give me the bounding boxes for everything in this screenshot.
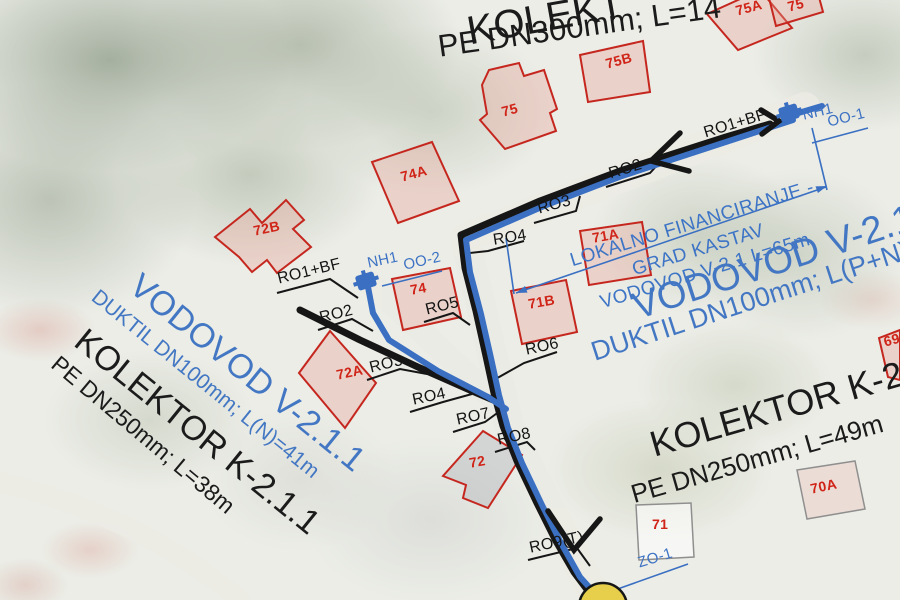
dimension-extension-right xyxy=(812,128,827,190)
building-label-71: 71 xyxy=(652,517,668,531)
building-outline-74A xyxy=(372,142,459,223)
building-label-72: 72 xyxy=(468,453,487,470)
utility-plan-map: KOLEKT PE DN300mm; L=14 VODOVOD V-2.1.1 … xyxy=(0,0,900,600)
water-main-pipe xyxy=(466,120,793,598)
building-label-75: 75 xyxy=(500,101,519,119)
leader-oo1 xyxy=(812,128,868,143)
building-label-69: 69 xyxy=(882,331,900,349)
manhole-leaders xyxy=(277,126,770,566)
building-label-74: 74 xyxy=(409,280,428,297)
building-outline-75B xyxy=(580,41,650,102)
building-outline-75 xyxy=(480,63,557,149)
dimension-arrow-right xyxy=(816,186,828,193)
